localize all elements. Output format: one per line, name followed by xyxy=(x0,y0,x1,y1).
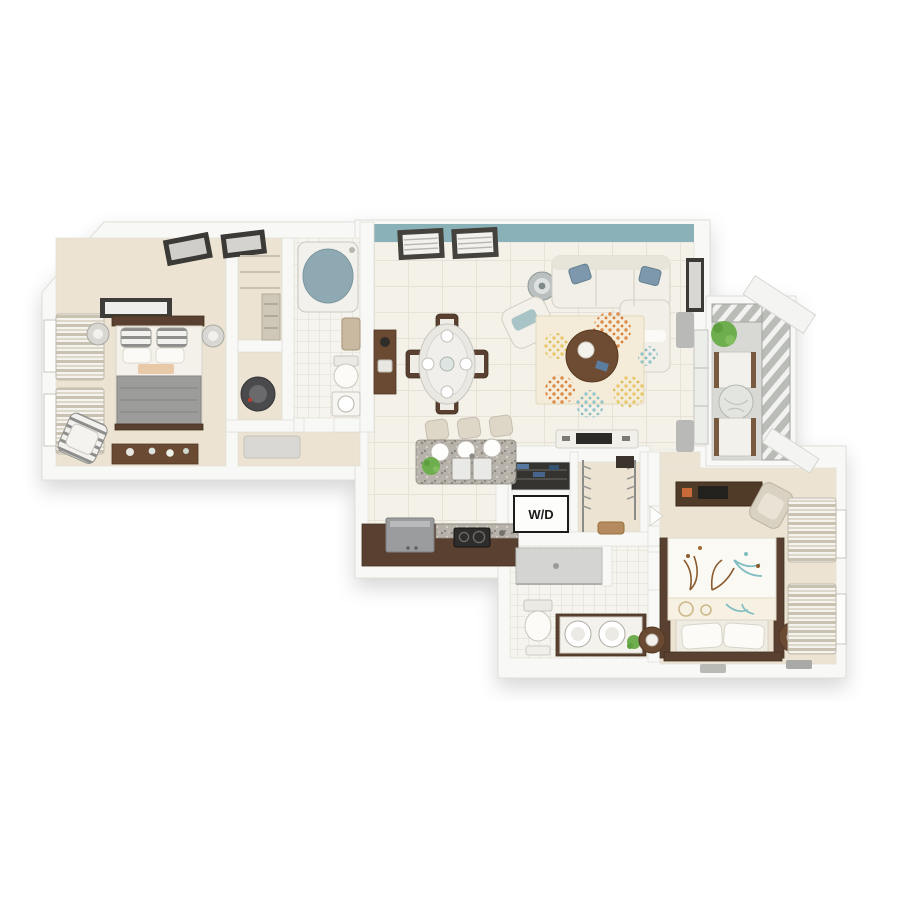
wall-closets-bath2 xyxy=(508,532,648,546)
wall-bath1-door-right xyxy=(334,418,360,432)
place-setting-2 xyxy=(441,386,453,398)
pillow-2b xyxy=(723,623,765,650)
tub-water xyxy=(303,249,353,303)
toilet-1 xyxy=(334,356,358,388)
wall-shower xyxy=(602,546,612,586)
headboard-1 xyxy=(112,316,204,326)
wall-bath1-door-left xyxy=(294,418,304,432)
bed-frame-foot xyxy=(115,424,203,430)
towel-stack xyxy=(526,646,550,655)
bed2-foot-rail xyxy=(664,652,782,661)
wall-closet-bottom xyxy=(226,420,294,432)
coffee-table xyxy=(566,330,618,382)
nightstand-lamp-left xyxy=(87,323,109,345)
island-plant xyxy=(422,457,440,475)
centerpiece xyxy=(440,357,454,371)
dining-table xyxy=(419,324,475,404)
refrigerator xyxy=(386,518,434,552)
striped-curtain-4 xyxy=(788,584,836,654)
hall-runner xyxy=(244,436,300,458)
floorplan-svg: W/D xyxy=(0,0,900,900)
tv xyxy=(576,433,612,444)
window-1 xyxy=(44,320,56,372)
console-table xyxy=(374,330,396,394)
towel-stack-1 xyxy=(517,464,529,469)
drape-bottom xyxy=(676,420,694,452)
desk-book xyxy=(682,488,692,497)
washer-dryer: W/D xyxy=(514,496,568,532)
accent-window-2 xyxy=(451,227,499,259)
bar-stool-2 xyxy=(457,417,482,440)
wall-hall2-bed2-upper xyxy=(648,452,660,506)
bed-1 xyxy=(112,316,204,430)
bed-2 xyxy=(660,538,784,661)
cooktop xyxy=(454,528,490,547)
striped-curtain-3 xyxy=(788,498,836,562)
shower-drain xyxy=(553,563,559,569)
rug-medallion-yellow-2 xyxy=(543,333,569,359)
desk-monitor xyxy=(698,486,728,499)
balcony xyxy=(711,276,819,473)
rug-medallion-yellow-1 xyxy=(613,376,645,408)
duvet-fold-band xyxy=(668,598,776,620)
wall-closet2-hall xyxy=(640,452,648,540)
patio-chair-2 xyxy=(714,418,756,456)
place-setting-1 xyxy=(441,330,453,342)
rug-medallion-teal-1 xyxy=(576,390,604,418)
wall-wingA-living xyxy=(360,222,374,432)
striped-pillow-1 xyxy=(121,328,151,347)
bar-stool-3 xyxy=(489,415,514,438)
railing-top xyxy=(712,304,762,322)
towel-stack-3 xyxy=(549,465,559,470)
towel xyxy=(342,318,360,350)
wall-hall2-bed2-lower xyxy=(648,526,660,546)
wall-laundry-closet2 xyxy=(570,452,578,540)
nightstand-lamp-right xyxy=(202,325,224,347)
wall-bed1-closet xyxy=(226,238,238,432)
rug-medallion-teal-2 xyxy=(638,346,658,366)
closet-bench xyxy=(598,522,624,534)
hanging-plant xyxy=(711,321,737,347)
drape-top xyxy=(676,312,694,348)
towel-stack-2 xyxy=(533,472,545,477)
accent-window-1 xyxy=(397,228,445,260)
round-nightstand-left xyxy=(639,627,665,653)
striped-pillow-2 xyxy=(157,328,187,347)
tub-faucet xyxy=(349,247,355,253)
floorplan-canvas: W/D xyxy=(0,0,900,900)
peach-throw xyxy=(138,364,174,374)
patio-chair-1 xyxy=(714,352,756,388)
white-pillow-1 xyxy=(123,348,151,363)
ladder-shelf xyxy=(262,294,280,340)
tv-console xyxy=(556,430,638,448)
heater-valve xyxy=(248,398,252,402)
vanity-sink-1 xyxy=(332,392,360,416)
wall-closet-divider xyxy=(238,340,282,352)
pendant-light-3 xyxy=(483,439,501,457)
white-pillow-2 xyxy=(156,348,184,363)
window-2 xyxy=(44,394,56,446)
patio-table xyxy=(719,385,753,419)
wall-closet-bath1 xyxy=(282,238,294,432)
place-setting-3 xyxy=(422,358,434,370)
bar-stool-1 xyxy=(425,419,450,442)
floor-mat-2 xyxy=(786,660,812,669)
wall-bath2-bed2-top xyxy=(648,546,660,552)
art-above-headboard xyxy=(100,298,172,318)
place-setting-4 xyxy=(460,358,472,370)
desk xyxy=(676,482,762,506)
floral-duvet xyxy=(668,538,776,600)
rug-medallion-orange-2 xyxy=(545,375,575,405)
double-vanity xyxy=(556,614,646,656)
floor-mat-1 xyxy=(700,664,726,673)
toilet-2 xyxy=(524,600,552,641)
washer-dryer-label: W/D xyxy=(528,507,553,522)
island-faucet xyxy=(469,453,474,458)
dresser-1 xyxy=(112,444,198,464)
kettle xyxy=(499,530,505,536)
utility-closet xyxy=(241,377,275,411)
stored-item xyxy=(616,456,634,468)
wall-art-living xyxy=(686,258,704,312)
pillow-2a xyxy=(681,623,723,650)
